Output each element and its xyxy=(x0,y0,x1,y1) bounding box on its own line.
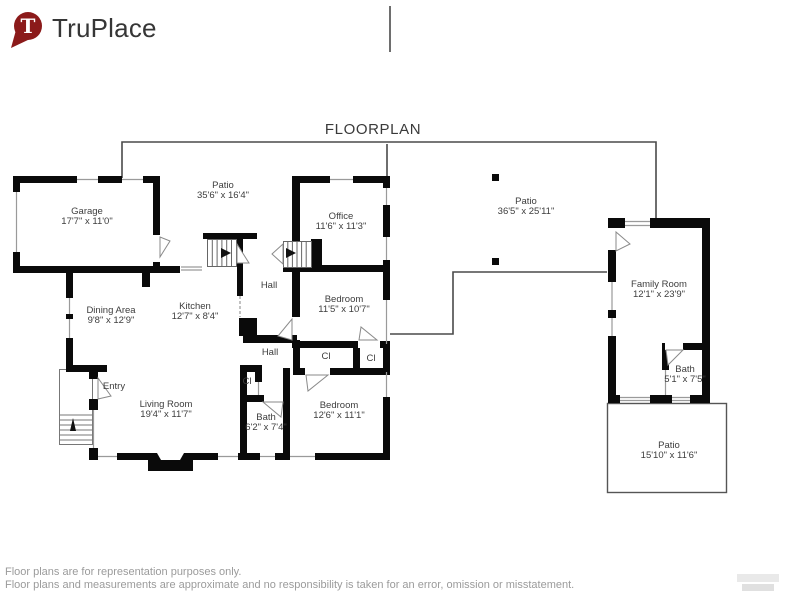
room-label-bedroom-b: Bedroom12'6" x 11'1" xyxy=(313,401,364,420)
staircase-icon xyxy=(284,242,312,268)
door-swing-icon xyxy=(306,375,328,391)
patio-posts xyxy=(492,174,499,265)
room-label-living-room: Living Room19'4" x 11'7" xyxy=(140,400,193,419)
room-label-bath-family: Bath5'1" x 7'5" xyxy=(664,365,706,384)
stoop-steps-icon xyxy=(60,415,92,440)
room-label-dining-area: Dining Area9'8" x 12'9" xyxy=(86,306,135,325)
watermark-bottom-bar xyxy=(742,584,774,591)
fireplace-icon xyxy=(148,453,193,471)
room-label-closet-a: Cl xyxy=(322,352,331,362)
room-label-patio-side: Patio36'5" x 25'11" xyxy=(498,197,555,216)
truplace-pin-icon: T xyxy=(6,6,48,50)
room-label-bedroom-a: Bedroom11'5" x 10'7" xyxy=(318,295,369,314)
door-swing-icon xyxy=(359,327,377,340)
room-label-bath-main: Bath6'2" x 7'4" xyxy=(245,413,287,432)
floorplan-page: T TruPlace FLOORPLAN Garage17'7" x 11'0"… xyxy=(0,0,787,600)
room-label-garage: Garage17'7" x 11'0" xyxy=(61,207,112,226)
room-label-patio-back: Patio35'6" x 16'4" xyxy=(197,181,249,200)
room-label-family-room: Family Room12'1" x 23'9" xyxy=(631,280,687,299)
room-label-closet-b: Cl xyxy=(367,354,376,364)
truplace-logo: T TruPlace xyxy=(6,6,157,50)
room-label-entry: Entry xyxy=(103,382,125,392)
watermark-logo xyxy=(735,574,781,594)
door-swing-icon xyxy=(272,244,283,264)
room-label-patio-rear: Patio15'10" x 11'6" xyxy=(641,441,698,460)
truplace-logo-text: TruPlace xyxy=(52,13,157,44)
room-label-hall-lower: Hall xyxy=(262,348,278,358)
entry-stoop xyxy=(60,370,93,445)
watermark-top-bar xyxy=(737,574,779,582)
room-label-hall-upper: Hall xyxy=(261,281,277,291)
disclaimer-line-1: Floor plans are for representation purpo… xyxy=(5,566,241,578)
door-swing-icon xyxy=(616,232,630,251)
floorplan-drawing xyxy=(0,0,787,600)
room-label-office: Office11'6" x 11'3" xyxy=(316,212,367,231)
room-label-kitchen: Kitchen12'7" x 8'4" xyxy=(172,302,219,321)
door-swing-icon xyxy=(160,237,170,257)
door-swing-icon xyxy=(666,350,683,365)
staircase-icon xyxy=(208,240,237,267)
door-swing-icon xyxy=(278,319,292,340)
svg-text:T: T xyxy=(21,14,36,38)
floorplan-title: FLOORPLAN xyxy=(325,121,421,138)
disclaimer-line-2: Floor plans and measurements are approxi… xyxy=(5,579,574,591)
door-swings xyxy=(98,232,683,417)
room-label-closet-hall: Cl xyxy=(243,377,252,387)
